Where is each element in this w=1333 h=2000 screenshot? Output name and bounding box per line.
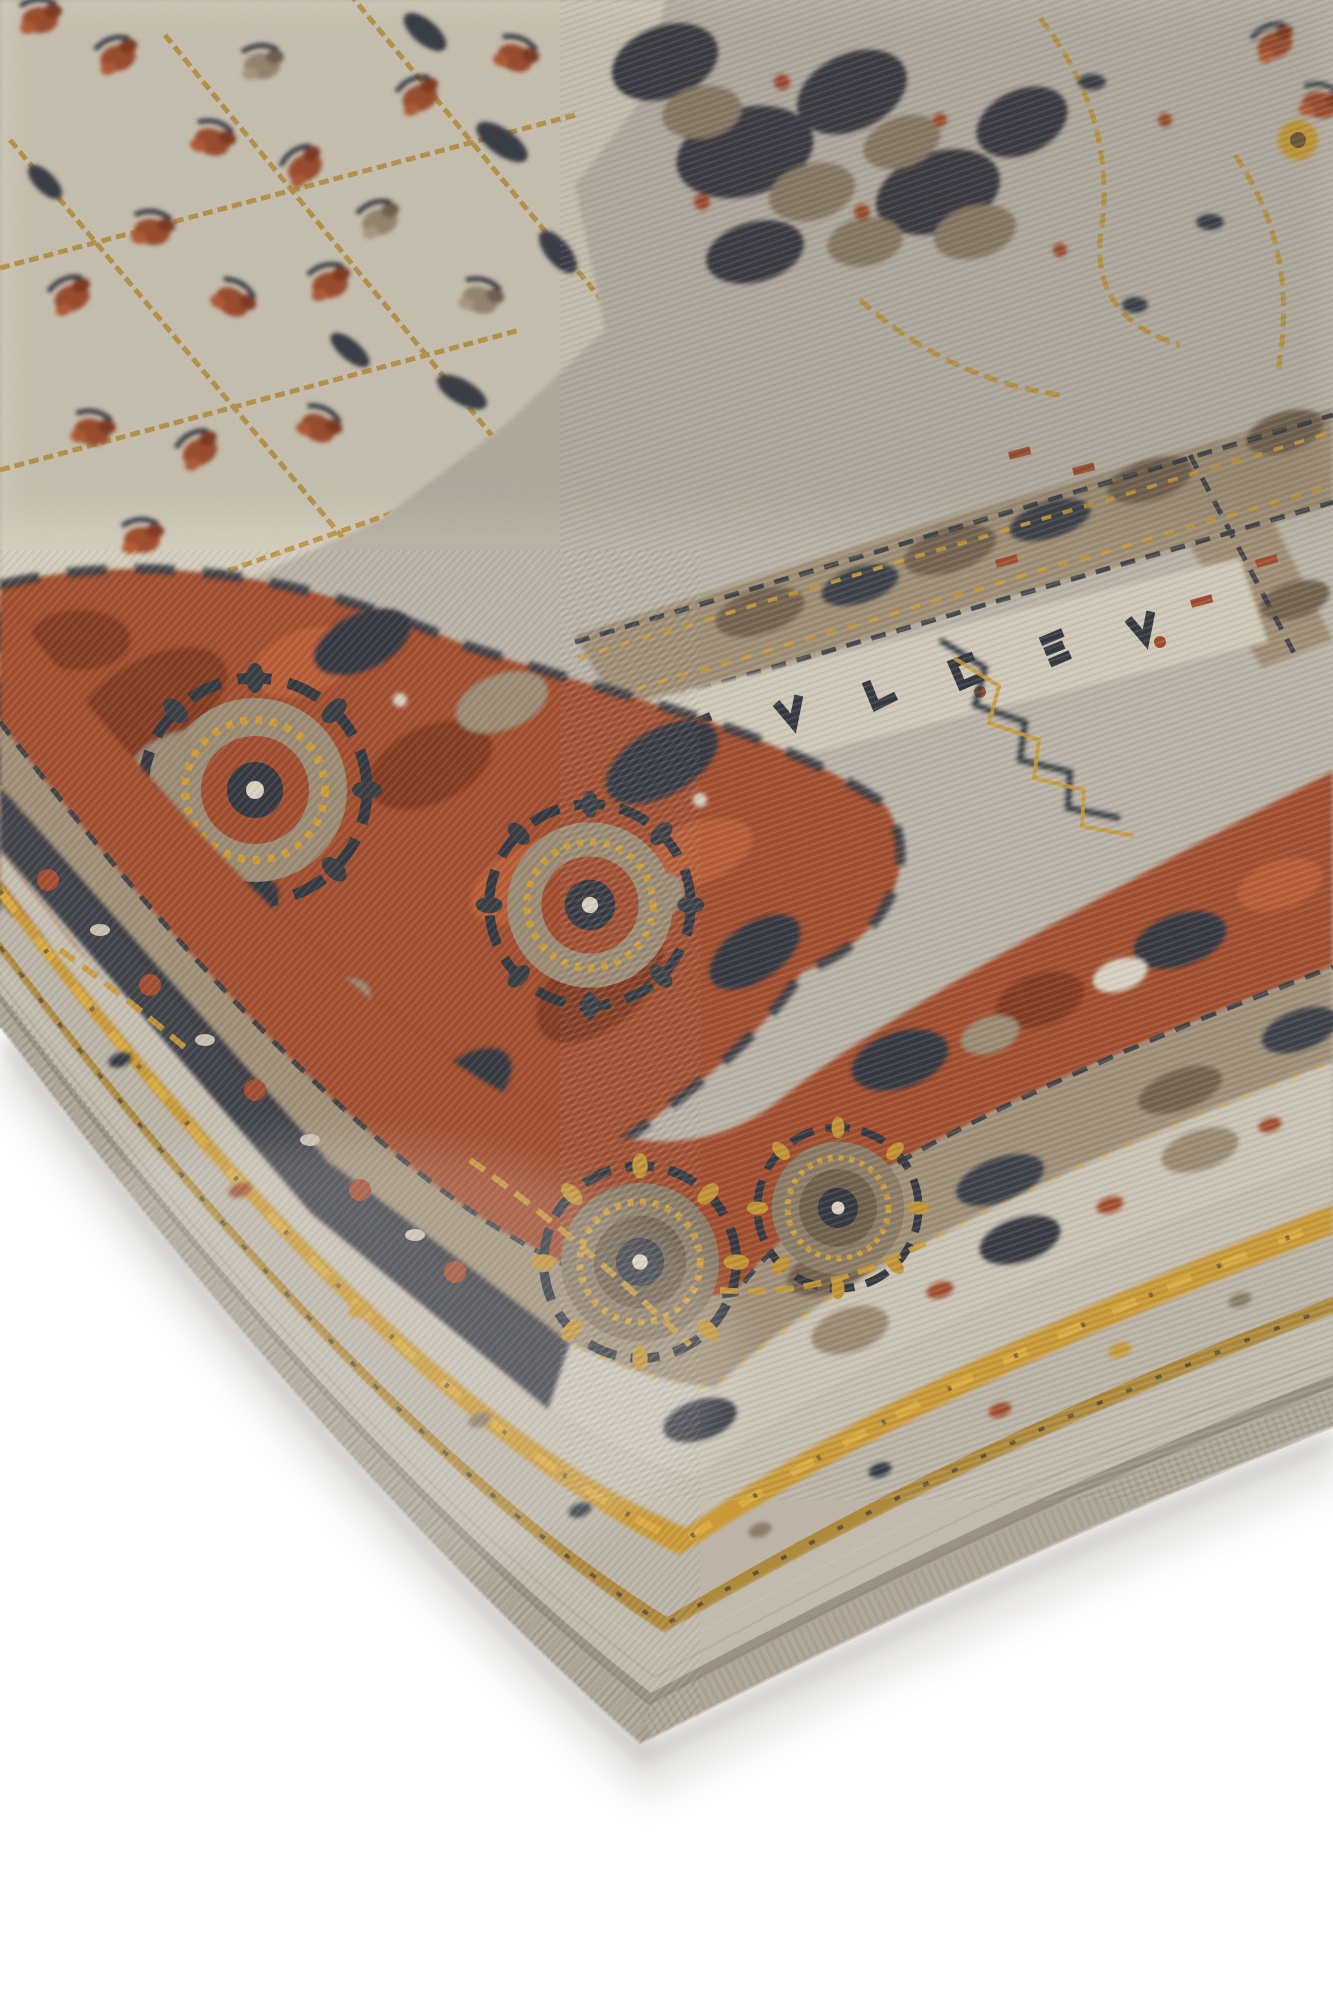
rug-corner-photo [0, 0, 1333, 2000]
rug-photo-illustration [0, 0, 1333, 2000]
product-photo-stage [0, 0, 1333, 2000]
